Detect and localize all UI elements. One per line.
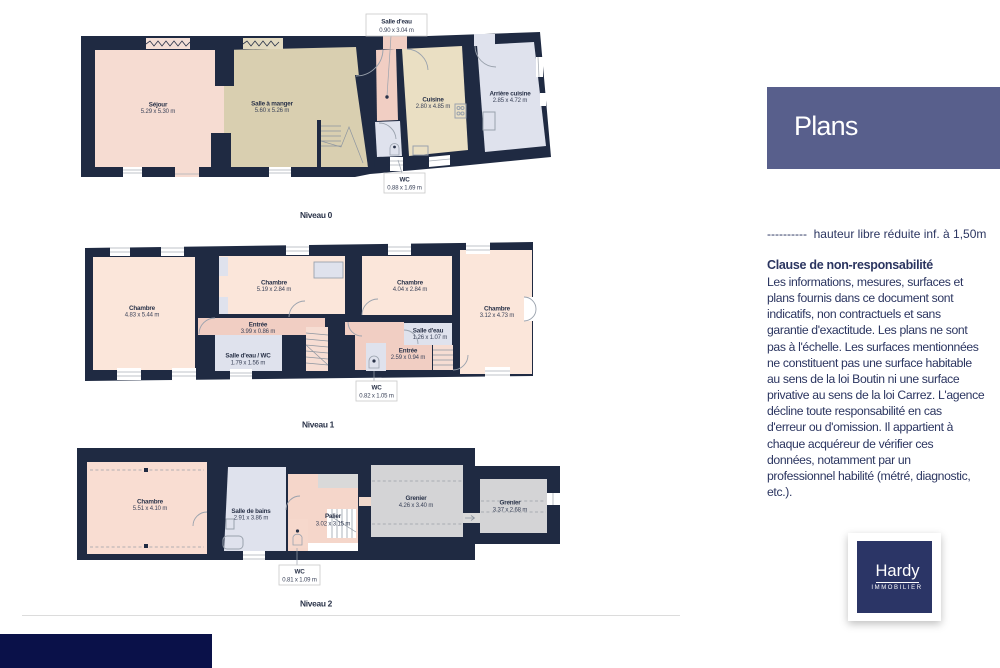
svg-text:Palier: Palier: [325, 513, 342, 520]
svg-text:WC: WC: [294, 569, 305, 576]
svg-text:2.85 x 4.72 m: 2.85 x 4.72 m: [493, 98, 528, 104]
svg-text:Salle d'eau / WC: Salle d'eau / WC: [225, 353, 271, 360]
svg-text:Entrée: Entrée: [249, 322, 268, 329]
svg-text:3.99 x 0.86 m: 3.99 x 0.86 m: [241, 329, 276, 335]
svg-text:Niveau 2: Niveau 2: [300, 599, 333, 609]
svg-text:5.60 x 5.26 m: 5.60 x 5.26 m: [255, 108, 290, 114]
svg-text:Chambre: Chambre: [129, 305, 156, 312]
svg-text:Séjour: Séjour: [149, 102, 168, 109]
svg-text:Niveau 0: Niveau 0: [300, 210, 333, 220]
svg-text:1.79 x 1.56 m: 1.79 x 1.56 m: [231, 361, 266, 367]
svg-text:3.37 x 2.68 m: 3.37 x 2.68 m: [493, 508, 528, 514]
svg-text:Salle d'eau: Salle d'eau: [413, 328, 444, 335]
svg-text:3.02 x 3.15 m: 3.02 x 3.15 m: [316, 522, 351, 528]
svg-text:0.82 x 1.05 m: 0.82 x 1.05 m: [359, 394, 394, 400]
svg-text:Grenier: Grenier: [406, 495, 428, 502]
svg-text:Niveau 1: Niveau 1: [302, 420, 335, 430]
svg-text:Salle à manger: Salle à manger: [251, 101, 293, 108]
svg-text:Grenier: Grenier: [500, 500, 522, 507]
svg-text:4.83 x 5.44 m: 4.83 x 5.44 m: [125, 313, 160, 319]
svg-text:0.81 x 1.09 m: 0.81 x 1.09 m: [282, 578, 317, 584]
svg-text:3.12 x 4.73 m: 3.12 x 4.73 m: [480, 313, 515, 319]
svg-text:5.29 x 5.30 m: 5.29 x 5.30 m: [141, 109, 176, 115]
svg-text:2.80 x 4.85 m: 2.80 x 4.85 m: [416, 104, 451, 110]
svg-text:4.26 x 3.40 m: 4.26 x 3.40 m: [399, 503, 434, 509]
svg-text:Entrée: Entrée: [399, 348, 418, 355]
svg-text:4.04 x 2.84 m: 4.04 x 2.84 m: [393, 287, 428, 293]
svg-text:0.88 x 1.69 m: 0.88 x 1.69 m: [387, 186, 422, 192]
svg-text:0.90 x 3.04 m: 0.90 x 3.04 m: [379, 28, 414, 34]
svg-text:Salle de bains: Salle de bains: [231, 508, 271, 515]
svg-text:Chambre: Chambre: [137, 499, 164, 506]
svg-text:5.19 x 2.84 m: 5.19 x 2.84 m: [257, 287, 292, 293]
svg-text:Chambre: Chambre: [484, 306, 511, 313]
svg-text:Chambre: Chambre: [397, 280, 424, 287]
svg-text:WC: WC: [371, 385, 382, 392]
svg-text:Salle d'eau: Salle d'eau: [381, 19, 412, 26]
svg-text:WC: WC: [399, 177, 410, 184]
svg-text:Arrière cuisine: Arrière cuisine: [489, 91, 531, 98]
svg-text:2.91 x 3.86 m: 2.91 x 3.86 m: [234, 516, 269, 522]
svg-text:Cuisine: Cuisine: [422, 97, 444, 104]
svg-text:2.59 x 0.94 m: 2.59 x 0.94 m: [391, 355, 426, 361]
svg-text:5.51 x 4.10 m: 5.51 x 4.10 m: [133, 506, 168, 512]
svg-text:1.26 x 1.07 m: 1.26 x 1.07 m: [413, 335, 448, 341]
svg-text:Chambre: Chambre: [261, 280, 288, 287]
